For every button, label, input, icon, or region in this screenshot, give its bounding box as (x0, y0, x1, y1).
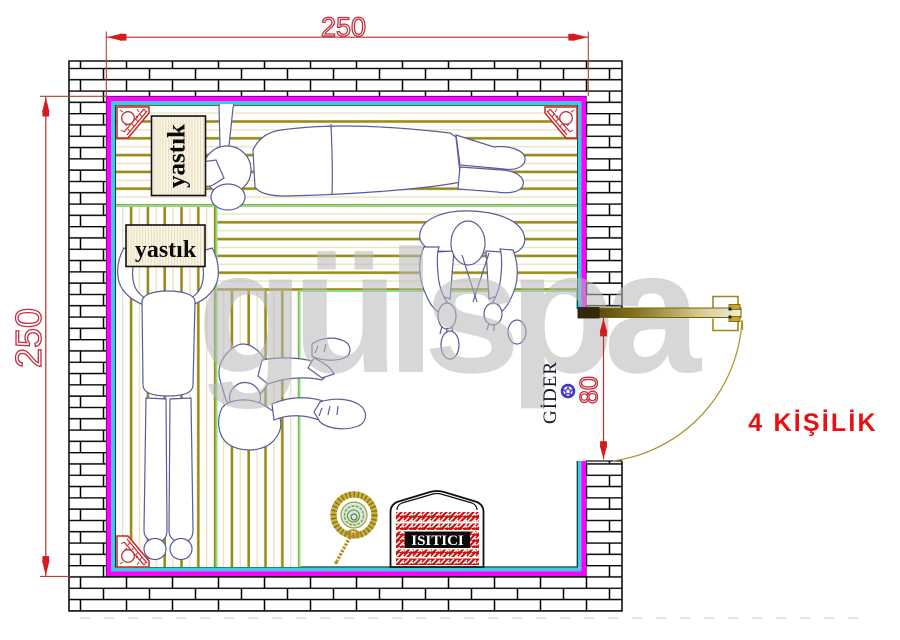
svg-text:ISITICI: ISITICI (411, 533, 464, 549)
svg-text:4 KİŞİLİK: 4 KİŞİLİK (748, 409, 878, 437)
svg-text:yastık: yastık (164, 124, 191, 188)
svg-text:GİDER: GİDER (540, 361, 561, 424)
svg-text:250: 250 (321, 12, 366, 42)
svg-text:80: 80 (576, 376, 604, 404)
svg-text:250: 250 (8, 308, 49, 368)
svg-text:yastık: yastık (135, 237, 197, 263)
